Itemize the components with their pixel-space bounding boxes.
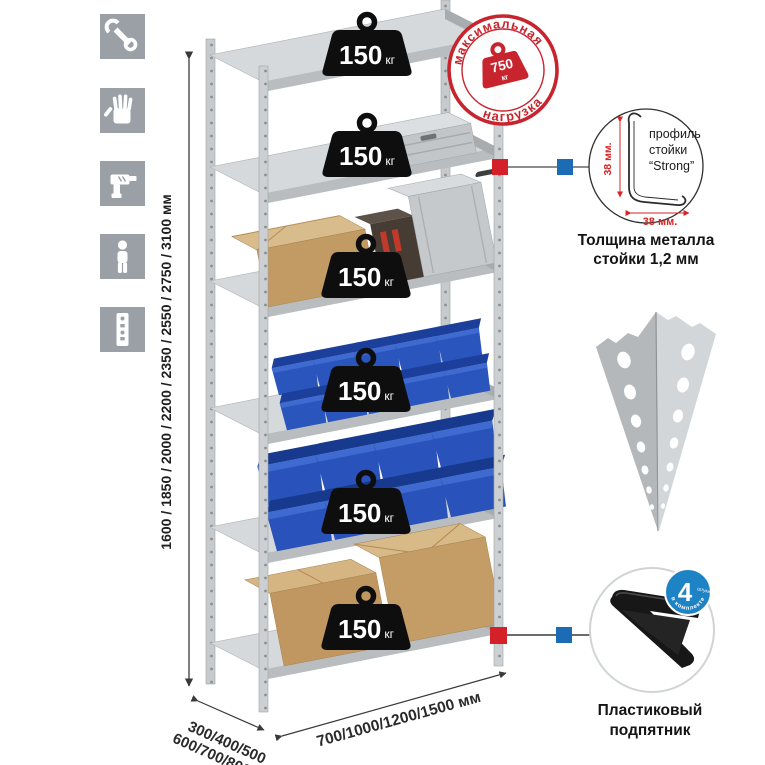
red-marker <box>492 159 508 175</box>
blue-marker <box>556 627 572 643</box>
callout-profile-connector <box>492 159 589 175</box>
profile-detail: 38 мм. 38 мм. профиль стойки “Strong” То… <box>578 109 715 268</box>
foot-caption-line2: подпятник <box>609 722 690 739</box>
profile-dim-horizontal: 38 мм. <box>643 216 678 228</box>
profile-label-line1: профиль <box>649 127 701 141</box>
feature-icons-column <box>100 14 145 352</box>
profile-dim-vertical: 38 мм. <box>602 142 614 175</box>
badge-number: 4 <box>678 577 693 607</box>
profile-caption-line1: Толщина металла <box>578 232 715 249</box>
gloves-icon <box>100 88 145 133</box>
included-count-badge: 4 штуки в комплекте <box>665 569 711 615</box>
profile-label-line3: “Strong” <box>649 159 694 173</box>
corner-post-detail <box>596 312 716 531</box>
foot-caption-line1: Пластиковый <box>598 702 703 719</box>
red-marker <box>490 627 507 644</box>
shelving-rack-illustration: 150кг 150кг 150кг 150кг 150кг 150кг макс… <box>0 0 765 765</box>
wrench-icon <box>100 14 145 59</box>
width-dimension: 700/1000/1200/1500 мм <box>282 673 506 750</box>
drill-icon <box>100 161 145 206</box>
person-icon <box>100 234 145 279</box>
height-label: 1600 / 1850 / 2000 / 2200 / 2350 / 2550 … <box>158 194 174 549</box>
plastic-foot-detail: 4 штуки в комплекте Пластиковый подпятни… <box>590 568 714 739</box>
callout-foot-connector <box>490 627 592 644</box>
blue-marker <box>557 159 573 175</box>
perforated-post-icon <box>100 307 145 352</box>
profile-caption-line2: стойки 1,2 мм <box>593 251 698 268</box>
profile-label-line2: стойки <box>649 143 687 157</box>
height-dimension: 1600 / 1850 / 2000 / 2200 / 2350 / 2550 … <box>158 59 189 686</box>
product-infographic: 150кг 150кг 150кг 150кг 150кг 150кг макс… <box>0 0 765 765</box>
